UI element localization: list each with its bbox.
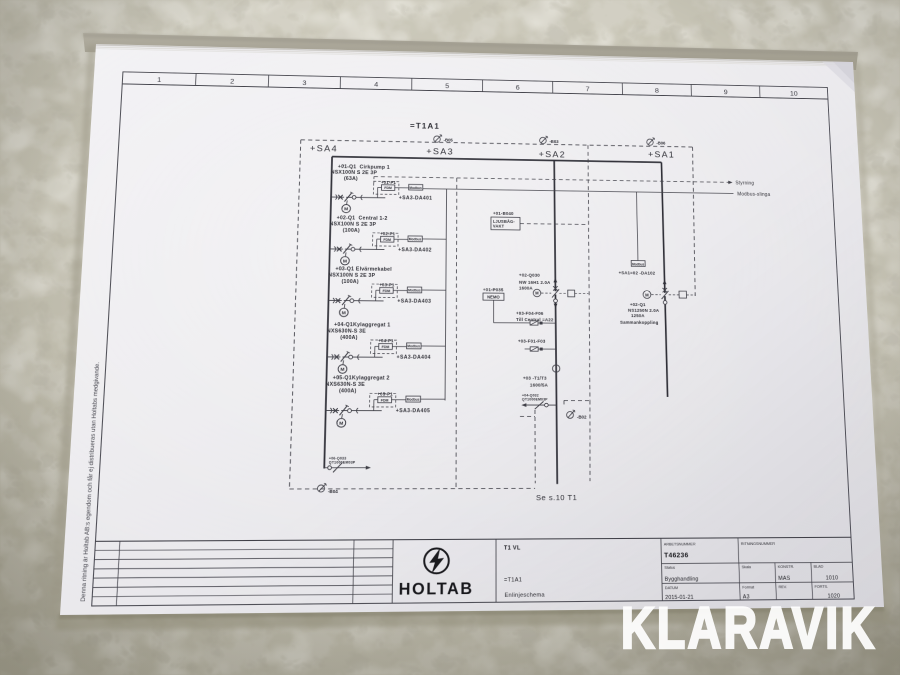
svg-text:NW 16H1 2.0A: NW 16H1 2.0A	[519, 280, 550, 285]
svg-text:KONSTR.: KONSTR.	[778, 565, 795, 569]
svg-text:-B03: -B03	[549, 139, 559, 144]
svg-text:=T1A1: =T1A1	[410, 122, 440, 131]
svg-text:(100A): (100A)	[342, 279, 359, 285]
svg-text:-B06: -B06	[656, 141, 666, 146]
svg-text:RITNINGSNUMMER: RITNINGSNUMMER	[741, 542, 776, 546]
svg-text:2: 2	[230, 77, 234, 86]
svg-text:7: 7	[586, 84, 590, 93]
svg-text:T46236: T46236	[664, 552, 689, 560]
svg-text:+02-P1: +02-P1	[380, 231, 396, 236]
svg-text:Format: Format	[742, 585, 754, 589]
svg-text:1250A: 1250A	[631, 313, 645, 318]
svg-text:FDM: FDM	[383, 289, 391, 293]
svg-text:FORTS.: FORTS.	[815, 584, 829, 588]
svg-text:ARBETSNUMMER: ARBETSNUMMER	[664, 542, 696, 546]
svg-text:Styrning: Styrning	[735, 181, 754, 187]
svg-text:+SA3: +SA3	[426, 146, 454, 156]
svg-text:NEMO: NEMO	[487, 295, 499, 300]
svg-text:FDM: FDM	[383, 238, 391, 242]
svg-text:+SA3-DA401: +SA3-DA401	[399, 195, 432, 201]
svg-text:1600/5A: 1600/5A	[530, 382, 548, 387]
svg-text:10: 10	[790, 89, 798, 98]
svg-text:+SA3-DA402: +SA3-DA402	[398, 247, 432, 253]
svg-text:FDM: FDM	[384, 186, 392, 190]
svg-text:+03-F01-F03: +03-F01-F03	[518, 338, 546, 343]
svg-text:+04-P1: +04-P1	[378, 338, 394, 343]
svg-text:3: 3	[302, 78, 306, 87]
svg-text:M: M	[342, 310, 346, 315]
svg-text:HOLTAB: HOLTAB	[399, 579, 474, 598]
svg-text:Enlinjeschema: Enlinjeschema	[505, 592, 545, 599]
svg-text:4: 4	[374, 80, 378, 89]
svg-text:-B02: -B02	[577, 414, 587, 419]
svg-text:Modbus: Modbus	[407, 344, 420, 348]
svg-text:Sammankoppling: Sammankoppling	[620, 320, 659, 325]
svg-text:DATUM: DATUM	[665, 586, 678, 590]
svg-text:(63A): (63A)	[344, 176, 358, 182]
svg-text:+05-P1: +05-P1	[377, 391, 393, 396]
svg-text:T1 VL: T1 VL	[504, 545, 521, 552]
svg-text:+02-Q030: +02-Q030	[519, 273, 540, 278]
svg-text:M: M	[343, 258, 347, 263]
svg-text:9: 9	[724, 87, 728, 95]
svg-text:+SA2: +SA2	[539, 149, 566, 159]
svg-text:Bygghandling: Bygghandling	[665, 576, 699, 583]
svg-text:Status: Status	[664, 566, 675, 570]
svg-text:+01-P035: +01-P035	[483, 287, 504, 292]
svg-text:+SA3-DA404: +SA3-DA404	[397, 354, 431, 360]
svg-text:Modbus-slinga: Modbus-slinga	[737, 192, 771, 198]
svg-text:M: M	[340, 367, 344, 372]
svg-text:Modbus: Modbus	[408, 288, 421, 292]
svg-text:Modbus: Modbus	[407, 398, 420, 402]
svg-text:(100A): (100A)	[343, 228, 360, 234]
svg-text:+SA4: +SA4	[310, 143, 338, 153]
svg-text:(400A): (400A)	[340, 335, 358, 341]
svg-text:FDM: FDM	[381, 398, 389, 402]
svg-text:QT1000EM03P: QT1000EM03P	[522, 397, 548, 401]
svg-text:=T1A1: =T1A1	[504, 577, 522, 584]
svg-text:1600A: 1600A	[519, 286, 533, 291]
svg-text:8: 8	[655, 86, 659, 94]
svg-text:+SA3-DA405: +SA3-DA405	[396, 408, 431, 414]
svg-text:Skala: Skala	[742, 565, 751, 569]
svg-text:1010: 1010	[826, 575, 839, 582]
svg-text:+03-P1: +03-P1	[379, 282, 395, 287]
svg-text:+SA1=02 -DA102: +SA1=02 -DA102	[619, 270, 656, 275]
svg-text:BLAD: BLAD	[814, 565, 824, 569]
svg-text:(400A): (400A)	[339, 388, 357, 394]
svg-text:Modbus: Modbus	[409, 186, 422, 190]
svg-text:M: M	[645, 292, 649, 297]
svg-text:5: 5	[445, 81, 449, 90]
svg-text:6: 6	[516, 83, 520, 92]
svg-text:VAKT: VAKT	[493, 224, 505, 229]
svg-text:Se s.10 T1: Se s.10 T1	[536, 494, 577, 503]
svg-text:+03-F04-F06: +03-F04-F06	[516, 311, 544, 316]
svg-text:+01-P1: +01-P1	[381, 180, 397, 185]
svg-text:NXS630N-S 3E: NXS630N-S 3E	[325, 381, 365, 387]
svg-text:+01-B040: +01-B040	[493, 211, 514, 216]
svg-text:+03 -T1/T3: +03 -T1/T3	[523, 375, 547, 380]
svg-text:+02-Q1: +02-Q1	[630, 302, 646, 307]
svg-text:1: 1	[157, 75, 162, 84]
svg-text:Modbus: Modbus	[409, 237, 422, 241]
svg-text:+SA3-DA403: +SA3-DA403	[397, 298, 431, 304]
svg-text:QT1000EM03P: QT1000EM03P	[329, 460, 356, 464]
svg-text:MAS: MAS	[778, 575, 791, 582]
svg-text:M: M	[339, 420, 343, 425]
svg-text:M: M	[344, 206, 348, 211]
svg-text:-B05: -B05	[444, 138, 454, 143]
svg-text:FDM: FDM	[382, 345, 390, 349]
svg-text:-B04: -B04	[328, 489, 339, 494]
svg-text:+SA1: +SA1	[648, 149, 675, 159]
svg-text:Modbus: Modbus	[632, 262, 645, 266]
svg-text:NS1250N 2.0A: NS1250N 2.0A	[628, 308, 659, 313]
svg-text:REV.: REV.	[779, 585, 787, 589]
